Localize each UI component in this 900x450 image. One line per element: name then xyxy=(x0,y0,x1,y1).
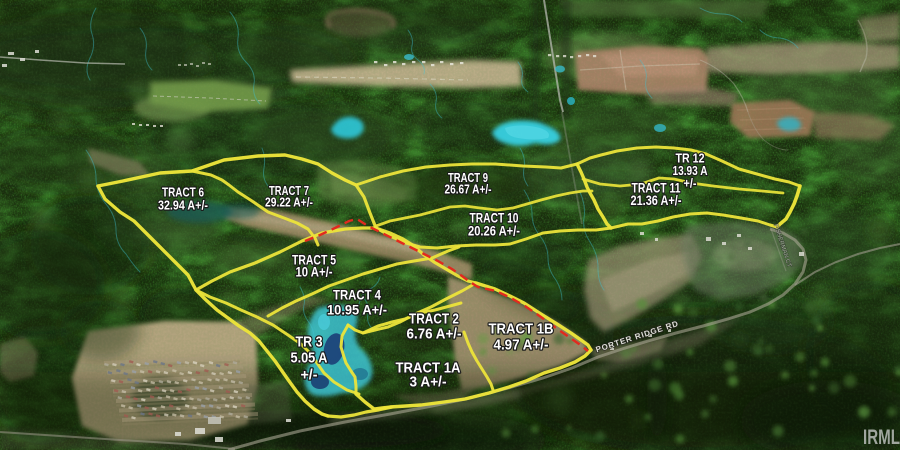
svg-text:21.36 A+/-: 21.36 A+/- xyxy=(631,193,682,208)
svg-text:20.26 A+/-: 20.26 A+/- xyxy=(468,224,520,239)
svg-text:TRACT 1B: TRACT 1B xyxy=(489,321,554,338)
svg-text:3 A+/-: 3 A+/- xyxy=(410,374,447,391)
svg-text:+/-: +/- xyxy=(684,176,697,191)
svg-text:26.67 A+/-: 26.67 A+/- xyxy=(445,182,492,197)
svg-text:32.94 A+/-: 32.94 A+/- xyxy=(158,198,208,213)
svg-text:29.22 A+/-: 29.22 A+/- xyxy=(265,195,313,210)
svg-text:5.05 A: 5.05 A xyxy=(291,351,328,367)
svg-text:TRACT 2: TRACT 2 xyxy=(409,312,459,328)
svg-text:IRML: IRML xyxy=(863,426,900,449)
svg-text:+/-: +/- xyxy=(301,368,318,384)
svg-text:10 A+/-: 10 A+/- xyxy=(296,265,333,280)
svg-text:6.76 A+/-: 6.76 A+/- xyxy=(407,327,462,343)
svg-text:10.95 A+/-: 10.95 A+/- xyxy=(327,302,387,318)
svg-text:TR 3: TR 3 xyxy=(296,335,323,351)
svg-text:4.97 A+/-: 4.97 A+/- xyxy=(494,337,549,354)
svg-text:TRACT 4: TRACT 4 xyxy=(333,287,381,303)
